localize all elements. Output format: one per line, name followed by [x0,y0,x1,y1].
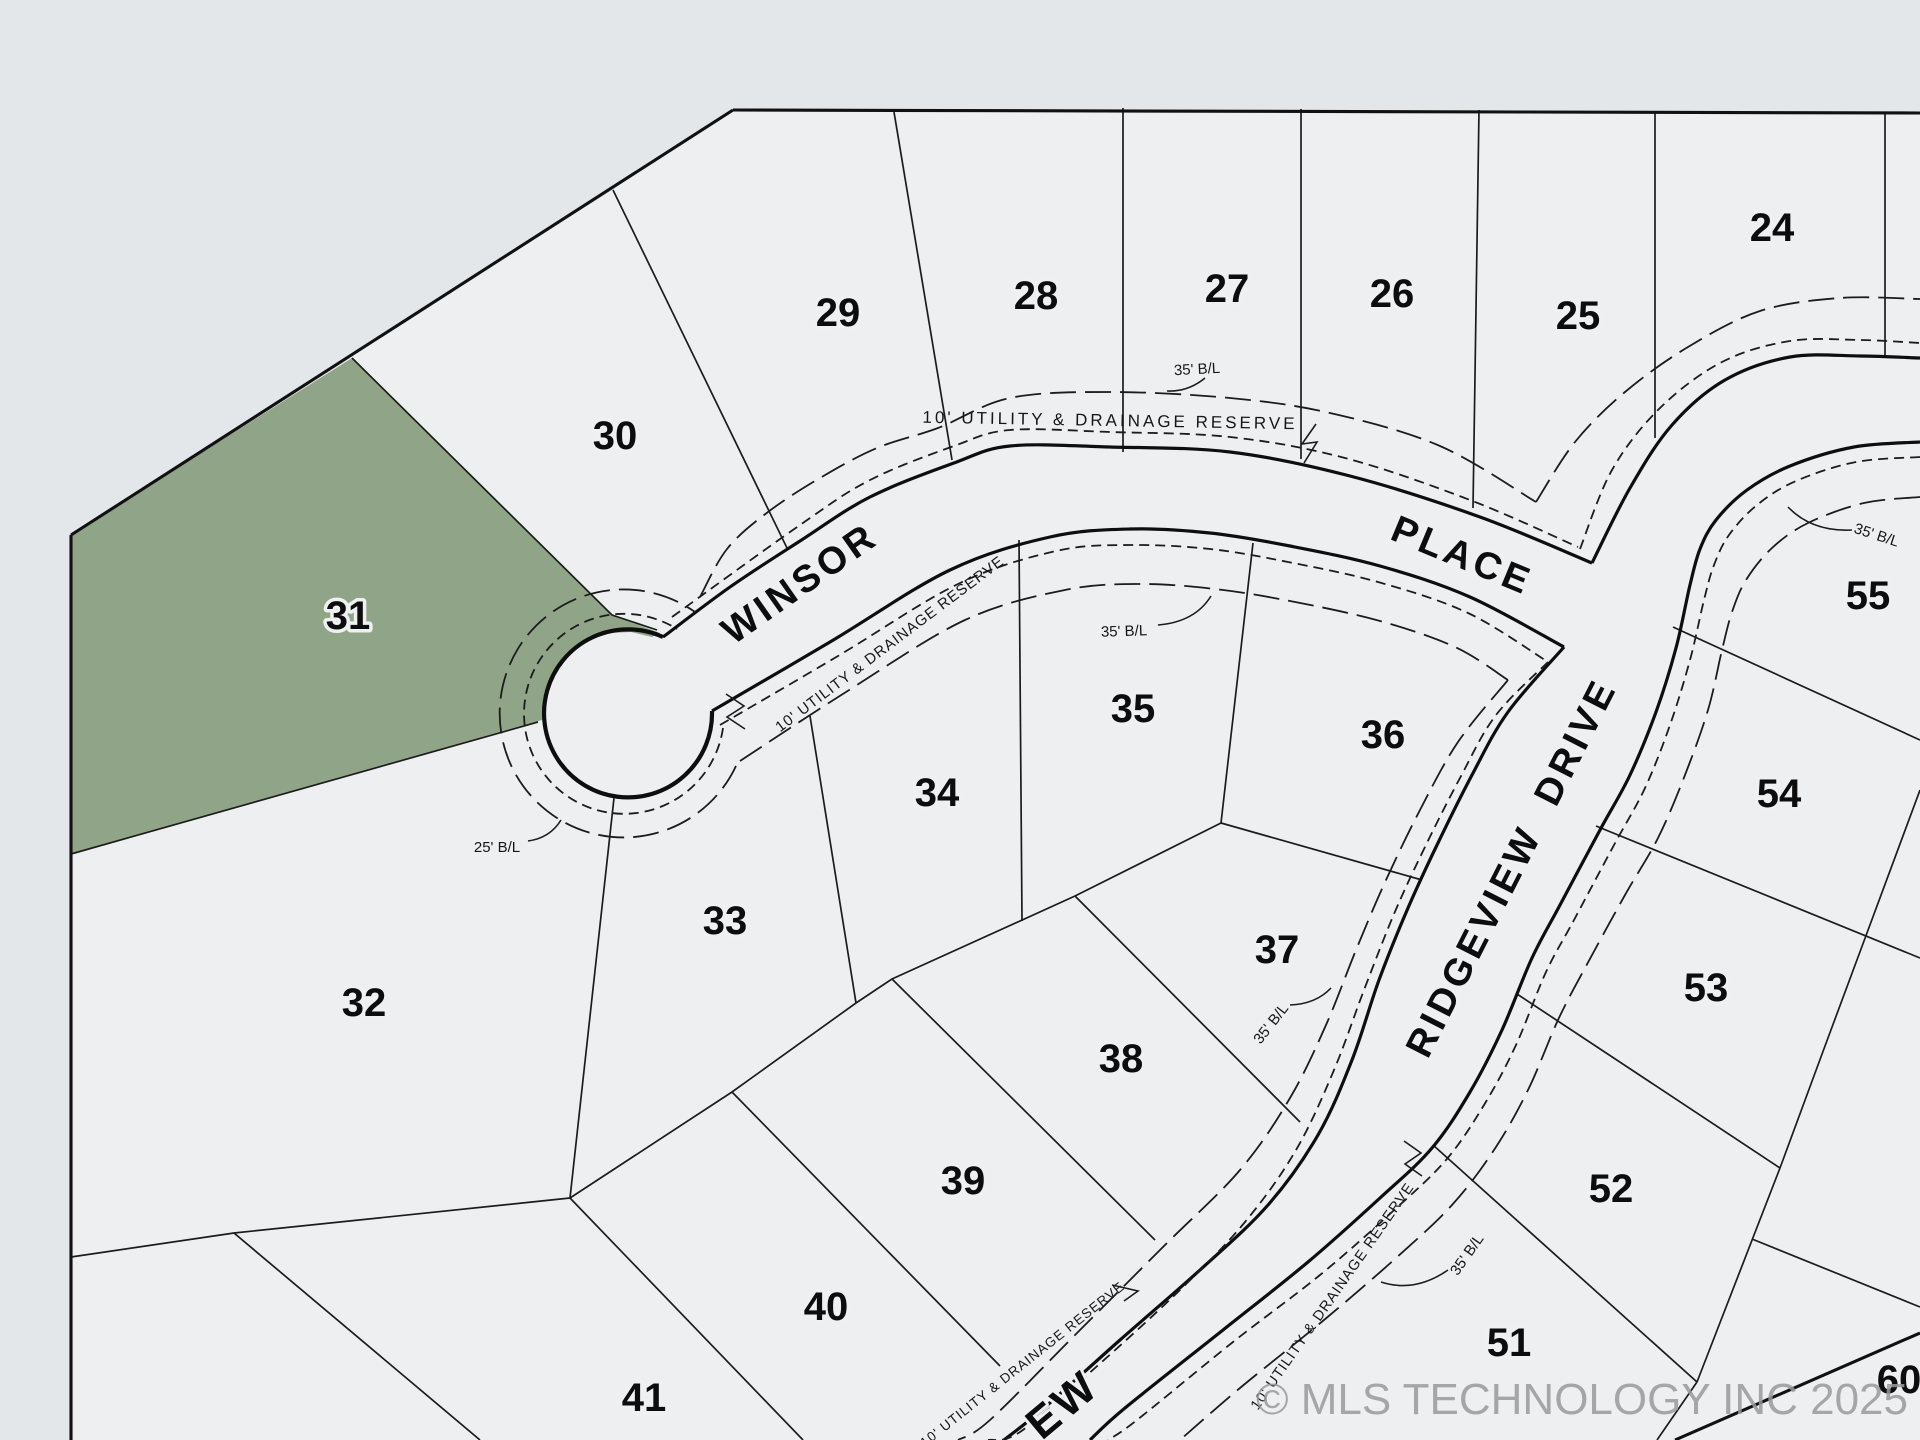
svg-text:53: 53 [1684,966,1729,1010]
svg-text:25: 25 [1556,294,1601,338]
svg-text:40: 40 [804,1285,849,1329]
svg-text:© MLS TECHNOLOGY INC 2025: © MLS TECHNOLOGY INC 2025 [1256,1375,1908,1424]
svg-text:27: 27 [1205,267,1250,311]
svg-text:25' B/L: 25' B/L [474,839,520,856]
svg-text:36: 36 [1361,713,1406,757]
svg-text:29: 29 [816,291,861,335]
svg-text:31: 31 [326,594,371,638]
svg-text:55: 55 [1846,574,1891,618]
svg-text:32: 32 [342,981,387,1025]
svg-text:33: 33 [703,899,748,943]
svg-text:24: 24 [1750,206,1795,250]
svg-text:51: 51 [1487,1321,1532,1365]
svg-text:52: 52 [1589,1167,1634,1211]
svg-text:37: 37 [1255,928,1300,972]
svg-text:28: 28 [1014,274,1059,318]
svg-text:39: 39 [941,1159,986,1203]
svg-text:30: 30 [593,414,638,458]
svg-text:54: 54 [1757,772,1802,816]
svg-text:41: 41 [622,1376,667,1420]
svg-text:34: 34 [915,771,960,815]
svg-text:38: 38 [1099,1037,1144,1081]
svg-text:26: 26 [1370,272,1415,316]
svg-text:35: 35 [1111,687,1156,731]
svg-text:35' B/L: 35' B/L [1174,360,1221,379]
svg-text:35' B/L: 35' B/L [1101,622,1148,641]
